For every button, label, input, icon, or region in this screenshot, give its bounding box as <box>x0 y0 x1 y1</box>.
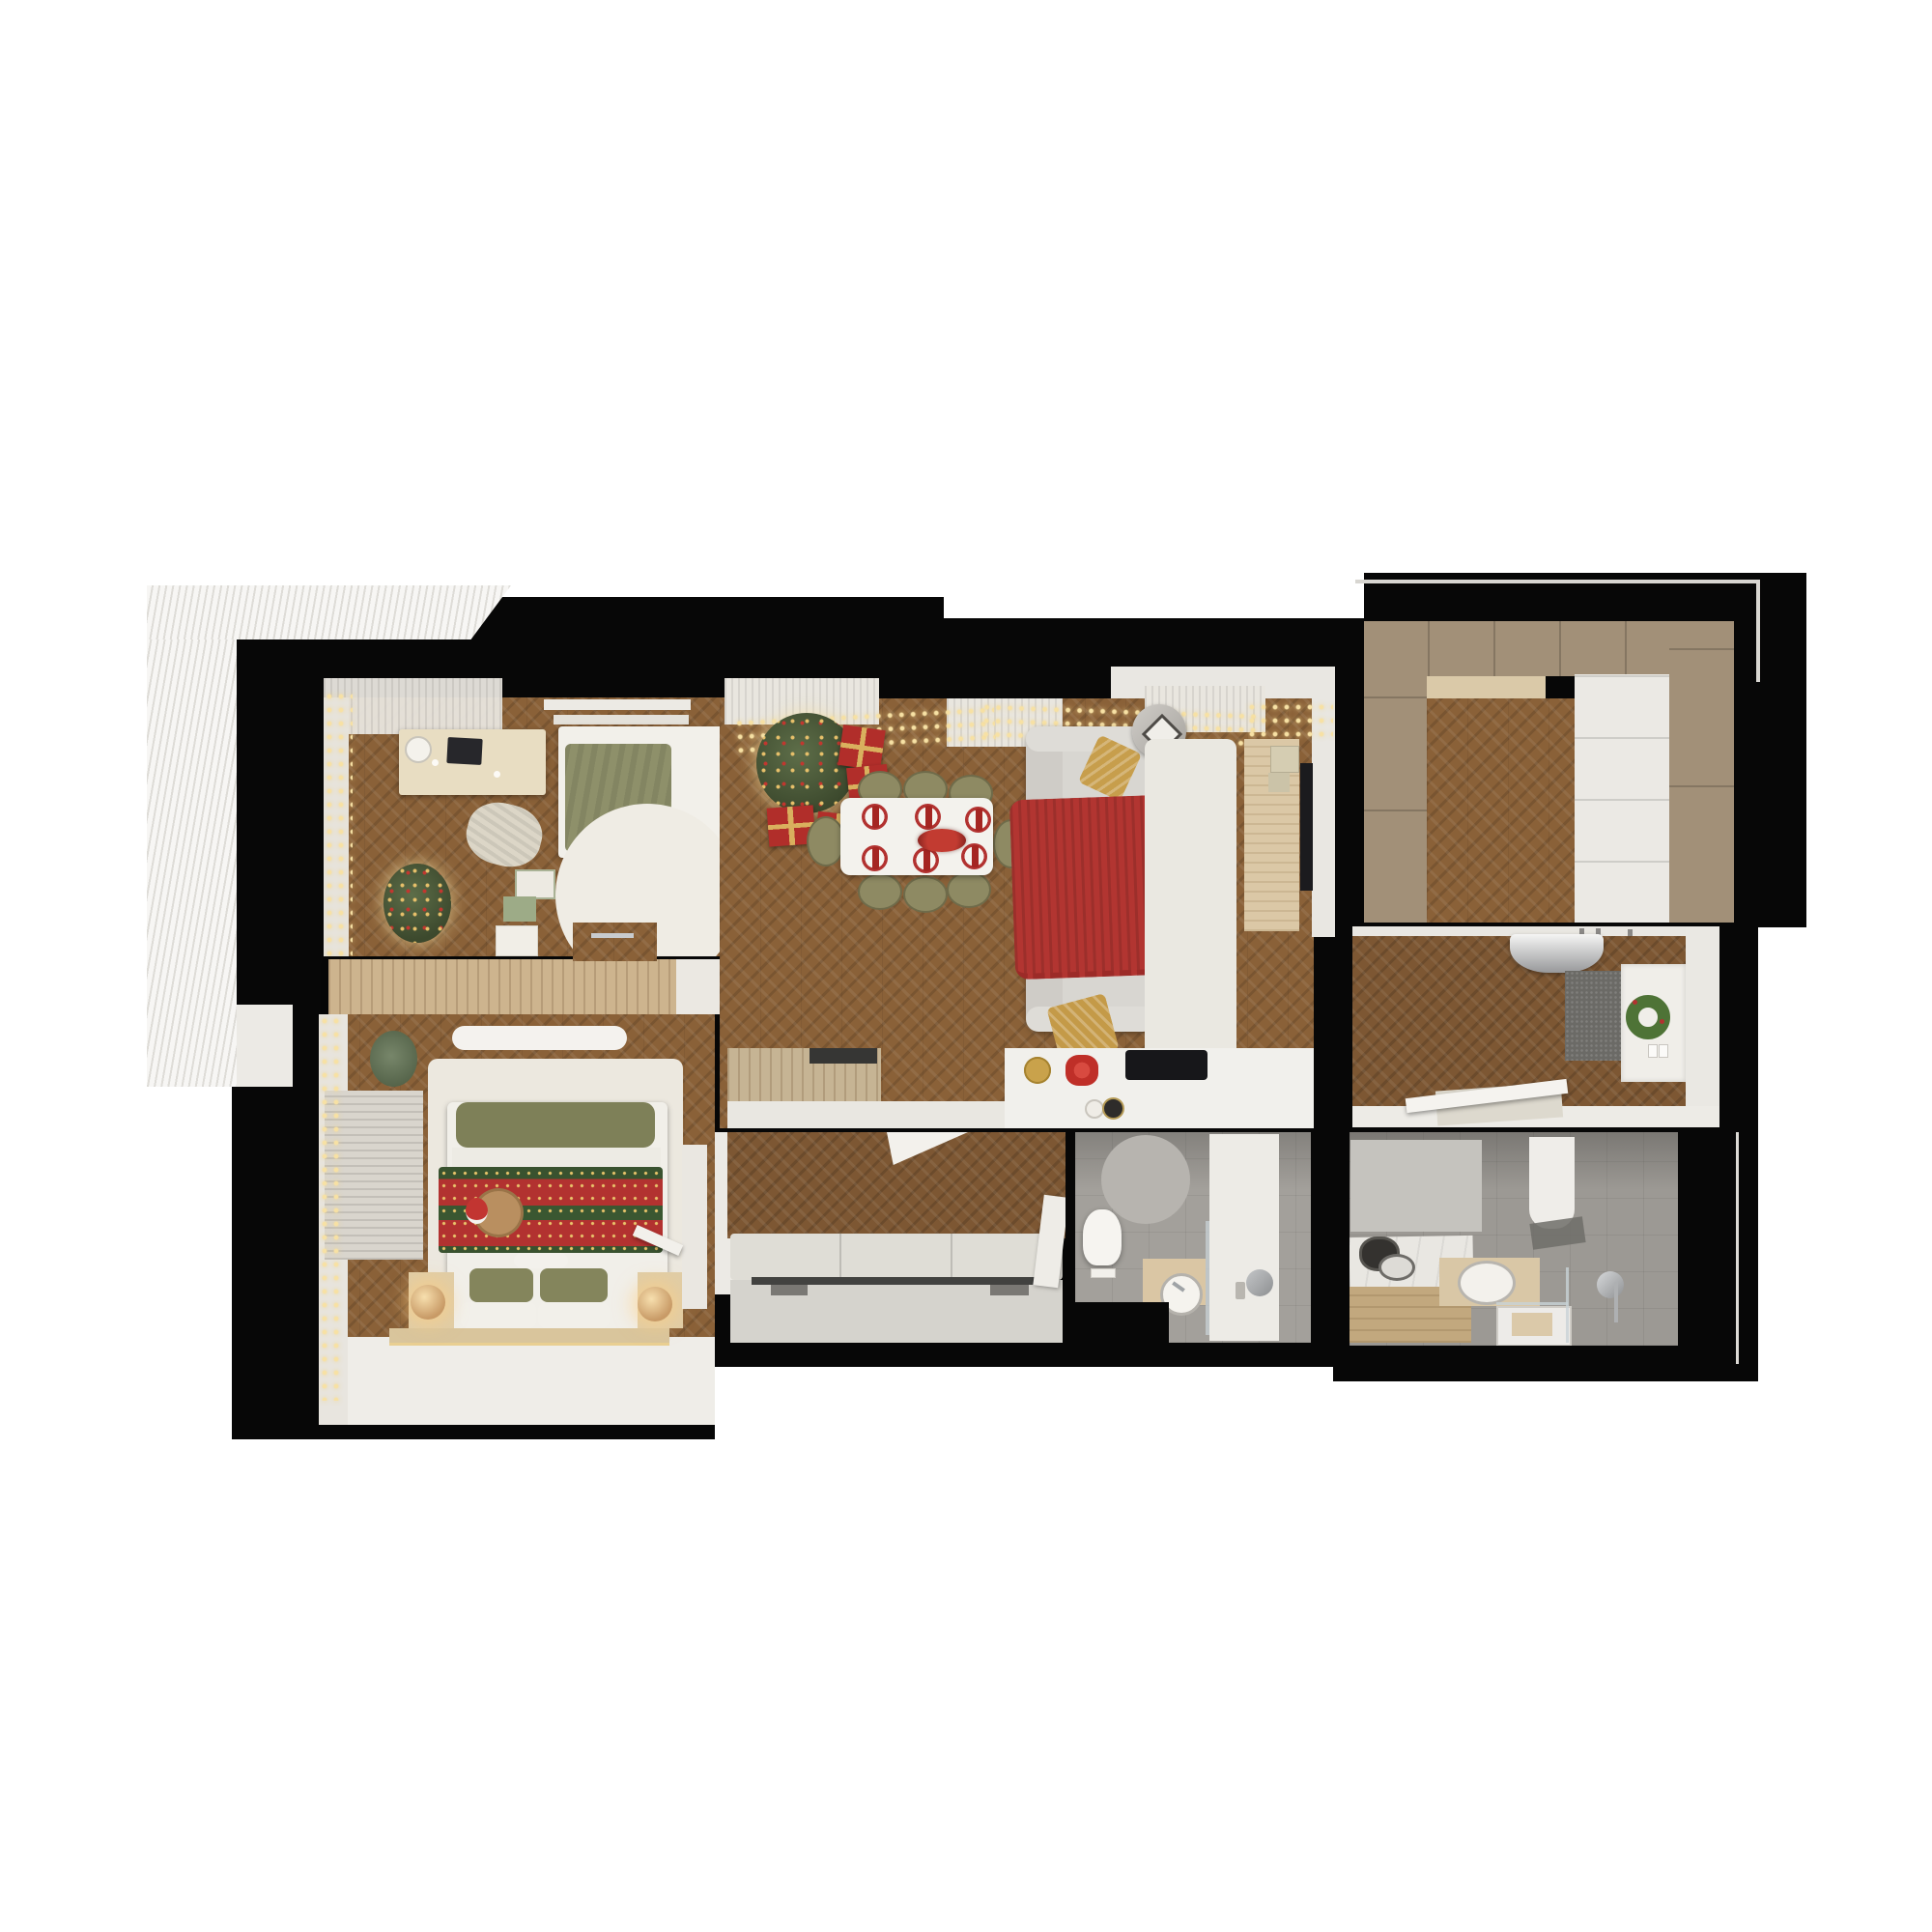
walk-in-closet <box>1364 621 1734 923</box>
gift-box <box>503 896 536 922</box>
chrome-console <box>1510 934 1604 973</box>
flush-plate <box>1091 1268 1116 1278</box>
eucalyptus-plant <box>370 1031 417 1087</box>
right-wall-white <box>1686 926 1719 1127</box>
outer-edge-line <box>1736 1132 1739 1364</box>
napkin <box>872 847 879 869</box>
white-pillow <box>461 1302 536 1328</box>
globe-lamp <box>411 1285 445 1320</box>
gift-box <box>515 869 555 899</box>
living-dining <box>720 667 1335 1128</box>
dining-chair <box>858 873 902 910</box>
balcony <box>147 591 237 1087</box>
dining-chair <box>807 816 845 867</box>
place-setting <box>915 804 941 830</box>
console-box <box>1270 746 1299 773</box>
garland <box>1246 700 1333 739</box>
floral-centerpiece <box>918 829 966 852</box>
storage-jar <box>1085 1099 1104 1119</box>
chrome-fixture <box>1597 1271 1624 1298</box>
dining-chair <box>903 876 948 913</box>
wardrobe-handle-strip <box>752 1277 1037 1285</box>
red-bow <box>1065 1055 1098 1086</box>
closet-cabinet-left <box>1364 621 1427 923</box>
place-setting <box>961 843 987 869</box>
wreath-berry <box>1660 1019 1664 1024</box>
christmas-tree-small <box>384 864 451 943</box>
desk-lamp <box>405 736 432 763</box>
white-pillow <box>538 1302 610 1328</box>
wall-shelf <box>544 699 691 710</box>
gift-box <box>496 925 538 956</box>
bench <box>452 1026 627 1050</box>
outer-edge-line <box>1355 580 1760 583</box>
bedroom-office <box>324 678 724 956</box>
balcony-canopy <box>147 585 511 639</box>
round-rug <box>1101 1135 1190 1224</box>
green-pillow <box>540 1268 608 1302</box>
island-tray <box>810 1048 877 1064</box>
napkin <box>872 806 879 828</box>
snowflake-decal <box>494 771 500 778</box>
floor-plan-render <box>0 0 1932 1932</box>
coat-hook <box>1628 929 1633 936</box>
closet-floor <box>1427 698 1575 923</box>
wardrobe-bracket <box>990 1285 1029 1295</box>
shower-tray-inner <box>1512 1313 1552 1336</box>
storage-jar <box>1102 1097 1124 1120</box>
shower-bar <box>1614 1282 1618 1322</box>
slatted-sideboard <box>328 959 676 1014</box>
string-lights <box>319 1014 342 1401</box>
napkin <box>923 849 930 871</box>
glass-screen <box>1496 1302 1568 1305</box>
wreath-berry <box>1633 1000 1637 1005</box>
oval-sink <box>1458 1261 1516 1305</box>
master-floor-white <box>319 1337 715 1425</box>
cooktop <box>1125 1050 1207 1080</box>
hallway <box>727 1132 1065 1343</box>
headrest <box>514 1253 568 1268</box>
console-box <box>1268 773 1290 792</box>
balcony-ledge <box>237 1005 293 1087</box>
light-switch <box>1659 1044 1668 1058</box>
santa-hat <box>466 1198 488 1224</box>
string-lights <box>324 690 353 956</box>
white-door <box>1529 1137 1575 1229</box>
napkin <box>976 809 982 831</box>
place-setting <box>862 804 888 830</box>
towel-rail <box>591 933 634 938</box>
dining-chair <box>947 871 991 908</box>
wardrobe <box>682 1145 707 1309</box>
place-setting <box>862 845 888 871</box>
gray-wall-panel <box>1350 1140 1482 1232</box>
bench-cushions <box>730 1234 1063 1280</box>
bed-platform <box>389 1328 669 1346</box>
bathroom <box>1350 1132 1678 1346</box>
glass-screen <box>1566 1267 1569 1343</box>
wardrobe-bracket <box>771 1285 808 1295</box>
green-pillow <box>469 1268 533 1302</box>
place-setting <box>965 807 991 833</box>
closet-cabinet-right <box>1669 621 1734 923</box>
floor-strip-white <box>727 1101 1005 1128</box>
shower-area <box>1209 1134 1279 1341</box>
toiletry-bottles <box>1236 1282 1245 1299</box>
white-basin <box>1378 1254 1415 1281</box>
laptop <box>446 737 482 765</box>
outer-edge-line <box>1756 580 1760 682</box>
napkin <box>925 806 932 828</box>
green-bolster-pillow <box>456 1102 655 1148</box>
closet-drawer-unit <box>1575 674 1669 923</box>
ornament-bowl <box>1024 1057 1051 1084</box>
shower-head <box>1246 1269 1273 1296</box>
white-rug <box>1145 739 1236 1063</box>
sideboard-end-unit <box>676 959 720 1014</box>
snowflake-decal <box>432 759 439 766</box>
napkin <box>972 845 979 867</box>
corridor-floor-patch <box>573 923 657 961</box>
wall-tv <box>1300 763 1313 891</box>
wall-notch <box>1075 1302 1169 1343</box>
entrance-hall <box>1352 926 1719 1127</box>
toilet <box>1083 1209 1122 1265</box>
doormat <box>1565 971 1623 1061</box>
bedroom-master <box>319 1014 715 1425</box>
globe-lamp <box>638 1287 672 1321</box>
red-gift <box>838 724 885 771</box>
wall-shelf <box>554 715 689 724</box>
shower-room <box>1075 1132 1311 1343</box>
light-switch <box>1648 1044 1658 1058</box>
